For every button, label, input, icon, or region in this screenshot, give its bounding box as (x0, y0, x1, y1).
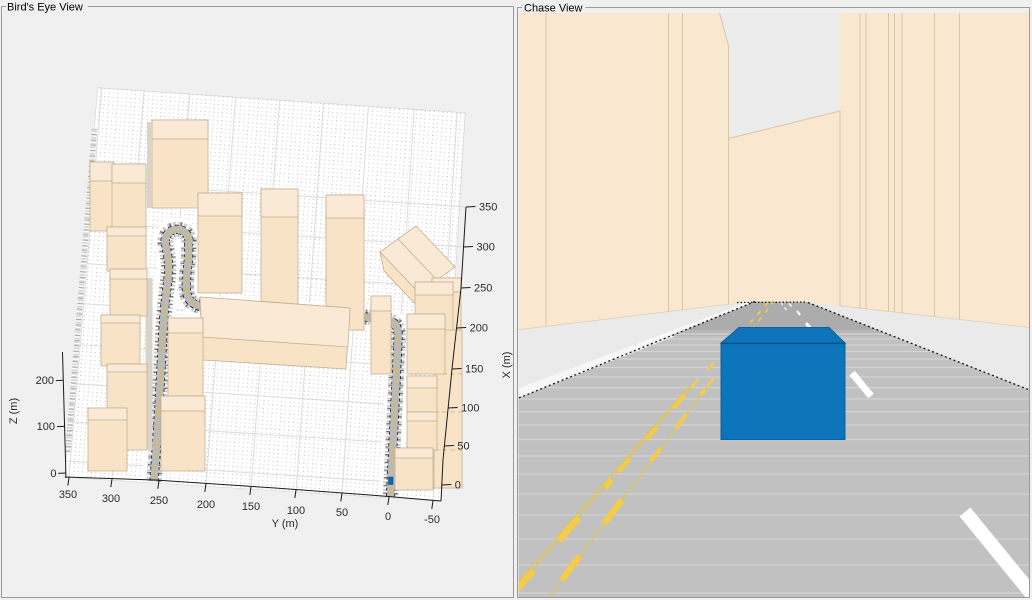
svg-text:Z (m): Z (m) (8, 398, 20, 424)
svg-text:Chase View: Chase View (524, 3, 583, 15)
svg-text:Y (m): Y (m) (272, 518, 299, 530)
svg-text:250: 250 (150, 495, 168, 507)
svg-text:150: 150 (242, 501, 260, 513)
svg-text:X (m): X (m) (501, 352, 513, 379)
svg-text:-50: -50 (424, 514, 440, 526)
svg-text:100: 100 (461, 403, 479, 415)
svg-text:0: 0 (455, 480, 461, 492)
svg-text:200: 200 (470, 323, 488, 335)
svg-text:Bird's Eye View: Bird's Eye View (7, 2, 83, 14)
svg-text:200: 200 (36, 375, 54, 387)
svg-text:300: 300 (477, 242, 495, 254)
svg-text:350: 350 (479, 202, 497, 214)
svg-text:50: 50 (336, 507, 348, 519)
svg-text:0: 0 (50, 468, 56, 480)
svg-text:100: 100 (37, 421, 55, 433)
svg-text:250: 250 (474, 283, 492, 295)
svg-text:350: 350 (59, 489, 77, 501)
svg-text:200: 200 (197, 499, 215, 511)
svg-text:150: 150 (465, 364, 483, 376)
svg-text:300: 300 (102, 493, 120, 505)
svg-text:100: 100 (287, 505, 305, 517)
svg-text:0: 0 (385, 511, 391, 523)
svg-text:50: 50 (457, 441, 469, 453)
